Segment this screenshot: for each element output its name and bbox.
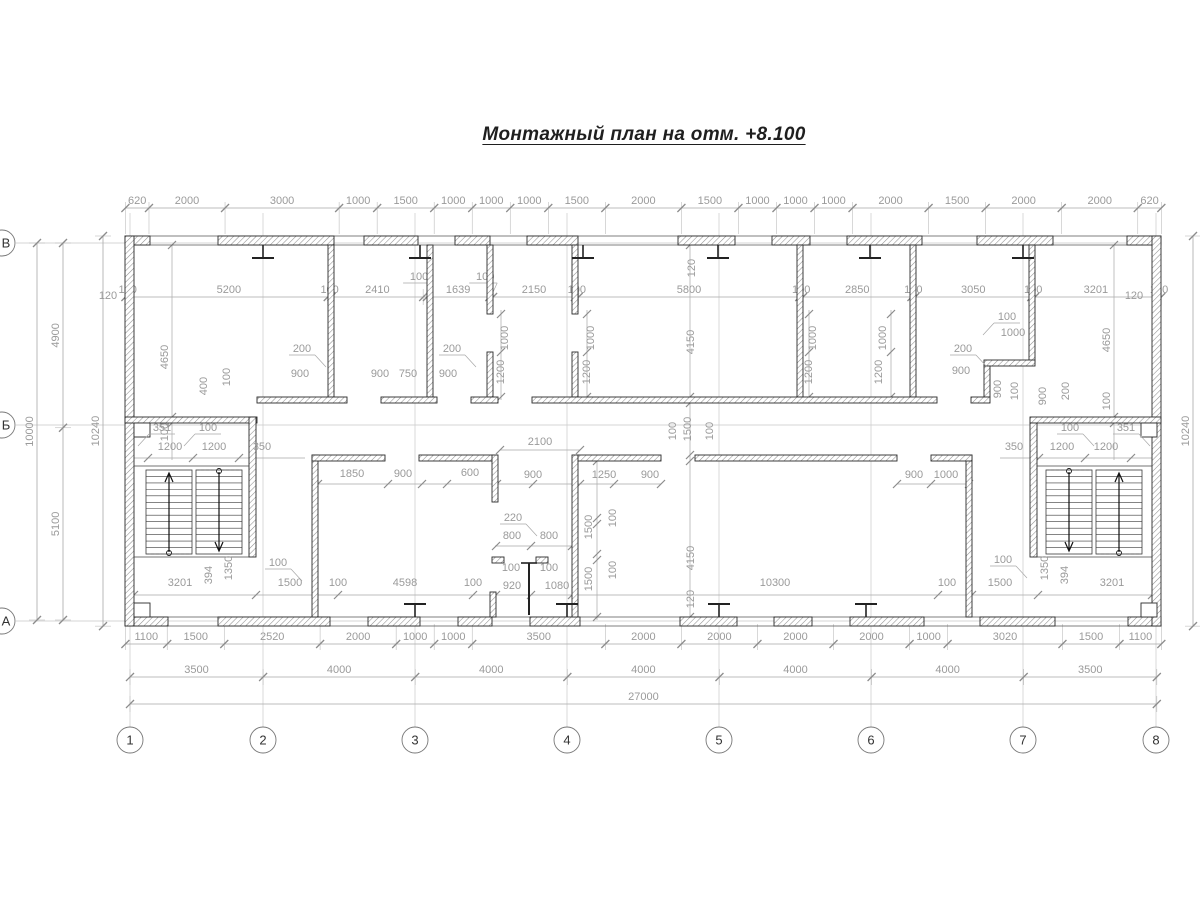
dim-chain-label: 620 xyxy=(1140,195,1158,207)
dim-free-label: 120 xyxy=(1125,290,1143,302)
dim-chain-label: 2000 xyxy=(631,631,655,643)
wall xyxy=(678,236,735,245)
dim-free-label: 1080 xyxy=(545,580,569,592)
wall xyxy=(532,397,937,403)
dim-chain-label: 1000 xyxy=(346,195,370,207)
dim-chain-label: 2000 xyxy=(175,195,199,207)
dim-free-label: 100 xyxy=(994,554,1012,566)
wall xyxy=(980,617,1055,626)
wall xyxy=(249,417,256,557)
dim-free-label: 4598 xyxy=(393,577,417,589)
dim-free-label: 1350 xyxy=(1039,556,1051,580)
dim-chain-label: 1100 xyxy=(1129,631,1153,643)
wall xyxy=(218,617,330,626)
dim-free-label: 100 xyxy=(1101,392,1113,410)
dim-leader xyxy=(1083,434,1094,446)
dim-free-label: 1500 xyxy=(682,417,694,441)
dim-free-label: 200 xyxy=(293,343,311,355)
dim-chain-label: 1500 xyxy=(1079,631,1103,643)
dim-free-label: 900 xyxy=(394,468,412,480)
wall xyxy=(847,236,922,245)
dim-free-label: 1500 xyxy=(583,515,595,539)
wall-niche xyxy=(1141,603,1157,617)
dim-free-label: 4650 xyxy=(159,345,171,369)
dim-chain-label: 3050 xyxy=(961,284,985,296)
wall xyxy=(368,617,420,626)
wall xyxy=(257,397,347,403)
wall xyxy=(578,455,661,461)
dim-free-label: 900 xyxy=(524,469,542,481)
dim-chain-label: 1500 xyxy=(184,631,208,643)
dimension-labels: 1204650100400100200900900750200900100012… xyxy=(99,259,1150,608)
wall xyxy=(328,245,334,397)
dim-free-label: 120 xyxy=(685,590,697,608)
dim-free-label: 394 xyxy=(1059,566,1071,584)
wall xyxy=(487,352,493,397)
dim-free-label: 4650 xyxy=(1101,328,1113,352)
wall xyxy=(527,236,578,245)
dim-free-label: 100 xyxy=(269,557,287,569)
dim-free-label: 1000 xyxy=(877,326,889,350)
dim-free-label: 100 xyxy=(607,561,619,579)
dim-chain-label: 2000 xyxy=(859,631,883,643)
dim-free-label: 351 xyxy=(153,422,171,434)
wall xyxy=(931,455,972,461)
wall xyxy=(984,360,1035,366)
axis-bubble-label: А xyxy=(2,614,11,629)
wall xyxy=(490,592,496,617)
dim-chain-label: 620 xyxy=(128,195,146,207)
dim-leader xyxy=(1016,566,1027,578)
dim-free-label: 900 xyxy=(641,469,659,481)
wall xyxy=(572,352,578,397)
dim-free-label: 200 xyxy=(1060,382,1072,400)
axis-bubble-label: 2 xyxy=(259,733,266,748)
dim-free-label: 100 xyxy=(704,422,716,440)
dim-chain-label: 1000 xyxy=(479,195,503,207)
wall-niche xyxy=(1141,423,1157,437)
dim-free-label: 394 xyxy=(203,566,215,584)
dim-free-label: 220 xyxy=(504,512,522,524)
wall xyxy=(1029,245,1035,362)
dim-chain-label: 4000 xyxy=(479,664,503,676)
dim-free-label: 1200 xyxy=(1050,441,1074,453)
dim-free-label: 1200 xyxy=(873,360,885,384)
wall xyxy=(572,245,578,314)
wall xyxy=(125,236,134,626)
wall xyxy=(850,617,924,626)
dim-chain-label: 1000 xyxy=(745,195,769,207)
dim-chain-label: 2410 xyxy=(365,284,389,296)
dim-chain-label: 1100 xyxy=(134,631,158,643)
axis-bubble-label: Б xyxy=(2,418,11,433)
dim-free-label: 1250 xyxy=(592,469,616,481)
dim-free-label: 1200 xyxy=(803,360,815,384)
wall xyxy=(966,455,972,617)
dim-chain-label: 1000 xyxy=(783,195,807,207)
wall xyxy=(695,455,897,461)
dim-chain-label: 1500 xyxy=(393,195,417,207)
wall xyxy=(984,366,990,397)
dim-free-label: 100 xyxy=(998,311,1016,323)
dim-chain-label: 1500 xyxy=(698,195,722,207)
dim-free-label: 3201 xyxy=(168,577,192,589)
dim-chain-label: 2850 xyxy=(845,284,869,296)
dim-free-label: 100 xyxy=(221,368,233,386)
dim-free-label: 400 xyxy=(198,377,210,395)
dim-free-label: 120 xyxy=(686,259,698,277)
dim-leader xyxy=(184,434,195,446)
dim-chain-label: 1500 xyxy=(945,195,969,207)
column-symbols xyxy=(252,245,1034,617)
dim-chain-label: 3500 xyxy=(527,631,551,643)
dim-chain-label: 3020 xyxy=(993,631,1017,643)
wall xyxy=(427,245,433,397)
dimension-chains: 6202000300010001500100010001000150020001… xyxy=(24,195,1200,712)
wall xyxy=(419,455,493,461)
dim-chain-label: 4000 xyxy=(783,664,807,676)
dim-free-label: 1500 xyxy=(583,567,595,591)
wall xyxy=(455,236,490,245)
dim-free-label: 900 xyxy=(1037,387,1049,405)
axis-bubble-label: 3 xyxy=(411,733,418,748)
dim-chain-label: 2000 xyxy=(707,631,731,643)
dim-free-label: 100 xyxy=(540,562,558,574)
dim-chain-label: 1000 xyxy=(403,631,427,643)
dim-chain-label: 2000 xyxy=(1011,195,1035,207)
dim-chain-label: 3000 xyxy=(270,195,294,207)
wall xyxy=(364,236,418,245)
dim-free-label: 2100 xyxy=(528,436,552,448)
dim-free-label: 1000 xyxy=(807,326,819,350)
dim-free-label: 1000 xyxy=(585,326,597,350)
wall xyxy=(458,617,492,626)
dim-chain-label: 2150 xyxy=(522,284,546,296)
dim-leader xyxy=(315,355,326,367)
dim-free-label: 10300 xyxy=(760,577,791,589)
dim-free-label: 1200 xyxy=(581,360,593,384)
wall xyxy=(910,245,916,397)
dim-chain-label: 3500 xyxy=(1078,664,1102,676)
dim-free-label: 800 xyxy=(503,530,521,542)
axis-bubble-label: В xyxy=(2,236,11,251)
wall xyxy=(492,455,498,502)
wall xyxy=(312,455,318,617)
dim-free-label: 920 xyxy=(503,580,521,592)
dim-free-label: 800 xyxy=(540,530,558,542)
dim-chain-label: 2520 xyxy=(260,631,284,643)
axis-bubbles: 12345678ВБА xyxy=(0,230,1169,753)
wall xyxy=(680,617,737,626)
dim-free-label: 4150 xyxy=(685,546,697,570)
wall-niche xyxy=(134,423,150,437)
wall xyxy=(218,236,334,245)
dim-chain-label: 27000 xyxy=(628,691,659,703)
axis-bubble-label: 8 xyxy=(1152,733,1159,748)
axis-bubble-label: 1 xyxy=(126,733,133,748)
dim-free-label: 4150 xyxy=(685,330,697,354)
dim-free-label: 900 xyxy=(439,368,457,380)
wall xyxy=(312,455,385,461)
dim-chain-label: 3201 xyxy=(1084,284,1108,296)
dim-free-label: 100 xyxy=(199,422,217,434)
dim-free-label: 100 xyxy=(1009,382,1021,400)
dim-free-label: 100 xyxy=(667,422,679,440)
dim-chain-label: 3500 xyxy=(184,664,208,676)
dim-free-label: 750 xyxy=(399,368,417,380)
drawing-title: Монтажный план на отм. +8.100 xyxy=(44,124,1200,146)
dim-free-label: 1850 xyxy=(340,468,364,480)
dim-free-label: 1200 xyxy=(1094,441,1118,453)
dim-chain-label: 2000 xyxy=(1087,195,1111,207)
dim-free-label: 1000 xyxy=(1001,327,1025,339)
dim-free-label: 100 xyxy=(329,577,347,589)
dim-chain-label: 5200 xyxy=(217,284,241,296)
dim-leader-label: 100 xyxy=(410,271,428,283)
dim-free-label: 1350 xyxy=(223,556,235,580)
dim-chain-label: 2000 xyxy=(878,195,902,207)
dim-free-label: 350 xyxy=(1005,441,1023,453)
dim-chain-label: 1000 xyxy=(821,195,845,207)
wall xyxy=(1030,417,1161,423)
dim-free-label: 1500 xyxy=(278,577,302,589)
dim-free-label: 200 xyxy=(954,343,972,355)
dim-free-label: 350 xyxy=(253,441,271,453)
dim-free-label: 100 xyxy=(502,562,520,574)
dim-chain-label: 10000 xyxy=(24,416,36,447)
wall xyxy=(125,417,257,423)
dim-chain-label: 4000 xyxy=(631,664,655,676)
dim-free-label: 351 xyxy=(1117,422,1135,434)
dim-free-label: 100 xyxy=(607,509,619,527)
dim-chain-label: 1500 xyxy=(565,195,589,207)
dim-free-label: 200 xyxy=(443,343,461,355)
dim-free-label: 600 xyxy=(461,467,479,479)
dim-leader xyxy=(983,323,994,335)
dim-free-label: 3201 xyxy=(1100,577,1124,589)
axis-bubble-label: 4 xyxy=(563,733,570,748)
dim-free-label: 900 xyxy=(992,380,1004,398)
dim-free-label: 1000 xyxy=(499,326,511,350)
dim-chain-label: 1000 xyxy=(916,631,940,643)
dim-chain-label: 1000 xyxy=(441,195,465,207)
dim-free-label: 900 xyxy=(952,365,970,377)
wall xyxy=(772,236,810,245)
wall xyxy=(971,397,990,403)
wall xyxy=(471,397,498,403)
wall-niche xyxy=(134,603,150,617)
dim-chain-label: 4000 xyxy=(935,664,959,676)
dim-chain-label: 5800 xyxy=(677,284,701,296)
dim-free-label: 100 xyxy=(1061,422,1079,434)
dim-leader xyxy=(526,524,537,536)
dim-free-label: 900 xyxy=(905,469,923,481)
wall xyxy=(572,455,578,617)
axis-bubble-label: 7 xyxy=(1019,733,1026,748)
dim-chain-label: 2000 xyxy=(631,195,655,207)
wall xyxy=(381,397,437,403)
wall xyxy=(487,245,493,314)
dim-free-label: 1200 xyxy=(495,360,507,384)
dim-chain-label: 1000 xyxy=(517,195,541,207)
dim-chain-label: 1000 xyxy=(441,631,465,643)
dim-free-label: 1200 xyxy=(202,441,226,453)
dim-free-label: 100 xyxy=(464,577,482,589)
dim-free-label: 100 xyxy=(938,577,956,589)
dim-chain-label: 10240 xyxy=(90,416,102,447)
dim-free-label: 900 xyxy=(371,368,389,380)
dim-free-label: 120 xyxy=(99,290,117,302)
dim-leader xyxy=(465,355,476,367)
dim-chain-label: 4000 xyxy=(327,664,351,676)
axis-bubble-label: 5 xyxy=(715,733,722,748)
dim-free-label: 900 xyxy=(291,368,309,380)
wall xyxy=(1030,423,1037,557)
dim-chain-label: 2000 xyxy=(783,631,807,643)
wall xyxy=(977,236,1053,245)
dim-chain-label: 10240 xyxy=(1180,416,1192,447)
dim-chain-label: 4900 xyxy=(50,323,62,347)
floor-plan-canvas: Монтажный план на отм. +8.100 6202000300… xyxy=(0,0,1200,900)
dim-chain-label: 5100 xyxy=(50,512,62,536)
dim-chain-label: 2000 xyxy=(346,631,370,643)
dim-chain-label: 1639 xyxy=(446,284,470,296)
dim-free-label: 1000 xyxy=(934,469,958,481)
wall xyxy=(530,617,580,626)
dim-free-label: 1500 xyxy=(988,577,1012,589)
wall xyxy=(774,617,812,626)
dim-free-label: 1200 xyxy=(158,441,182,453)
axis-bubble-label: 6 xyxy=(867,733,874,748)
